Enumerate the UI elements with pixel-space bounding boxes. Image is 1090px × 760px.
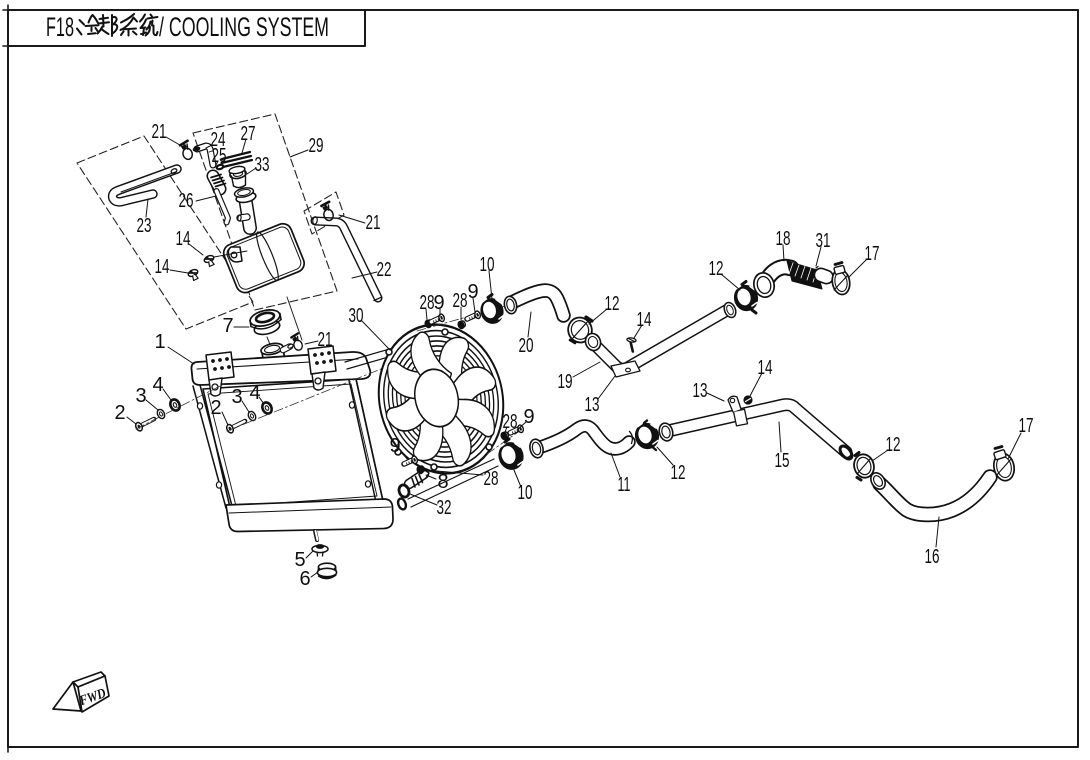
svg-text:26: 26 xyxy=(179,190,194,212)
svg-text:27: 27 xyxy=(241,123,256,145)
svg-text:28: 28 xyxy=(503,411,518,433)
svg-text:2: 2 xyxy=(114,402,125,424)
svg-text:3: 3 xyxy=(135,385,146,407)
svg-text:22: 22 xyxy=(377,259,392,281)
svg-text:14: 14 xyxy=(176,228,191,250)
svg-text:10: 10 xyxy=(518,482,533,504)
svg-text:17: 17 xyxy=(1019,415,1034,437)
svg-text:20: 20 xyxy=(519,335,534,357)
svg-text:F18: F18 xyxy=(46,12,74,42)
svg-text:12: 12 xyxy=(709,258,724,280)
svg-text:32: 32 xyxy=(437,497,452,519)
svg-text:/ COOLING SYSTEM: / COOLING SYSTEM xyxy=(159,12,329,42)
svg-text:9: 9 xyxy=(433,292,444,314)
svg-text:9: 9 xyxy=(467,281,478,303)
svg-text:14: 14 xyxy=(758,357,773,379)
svg-text:8: 8 xyxy=(437,471,448,493)
svg-text:12: 12 xyxy=(671,462,686,484)
svg-text:19: 19 xyxy=(558,371,573,393)
svg-text:3: 3 xyxy=(231,386,242,408)
svg-text:21: 21 xyxy=(152,121,167,143)
svg-text:23: 23 xyxy=(137,215,152,237)
svg-text:16: 16 xyxy=(925,546,940,568)
svg-text:21: 21 xyxy=(318,329,333,351)
svg-text:15: 15 xyxy=(775,450,790,472)
svg-text:21: 21 xyxy=(366,212,381,234)
svg-text:6: 6 xyxy=(299,568,310,590)
svg-text:7: 7 xyxy=(222,315,233,337)
svg-text:4: 4 xyxy=(249,382,260,404)
svg-text:18: 18 xyxy=(776,228,791,250)
svg-text:13: 13 xyxy=(585,394,600,416)
svg-text:1: 1 xyxy=(154,331,165,353)
svg-text:2: 2 xyxy=(210,397,221,419)
svg-text:14: 14 xyxy=(155,256,170,278)
svg-text:29: 29 xyxy=(309,135,324,157)
svg-text:25: 25 xyxy=(212,145,227,167)
svg-text:28: 28 xyxy=(453,290,468,312)
svg-text:9: 9 xyxy=(389,435,400,457)
svg-text:33: 33 xyxy=(255,154,270,176)
svg-text:13: 13 xyxy=(693,380,708,402)
svg-text:12: 12 xyxy=(886,434,901,456)
svg-text:11: 11 xyxy=(618,474,631,496)
svg-text:31: 31 xyxy=(816,230,831,252)
svg-text:14: 14 xyxy=(637,309,652,331)
svg-text:9: 9 xyxy=(523,406,534,428)
svg-text:17: 17 xyxy=(865,243,880,265)
svg-text:12: 12 xyxy=(605,293,620,315)
svg-text:28: 28 xyxy=(420,292,435,314)
svg-text:28: 28 xyxy=(484,468,499,490)
svg-text:10: 10 xyxy=(480,254,495,276)
svg-text:4: 4 xyxy=(152,374,163,396)
svg-text:30: 30 xyxy=(349,305,364,327)
